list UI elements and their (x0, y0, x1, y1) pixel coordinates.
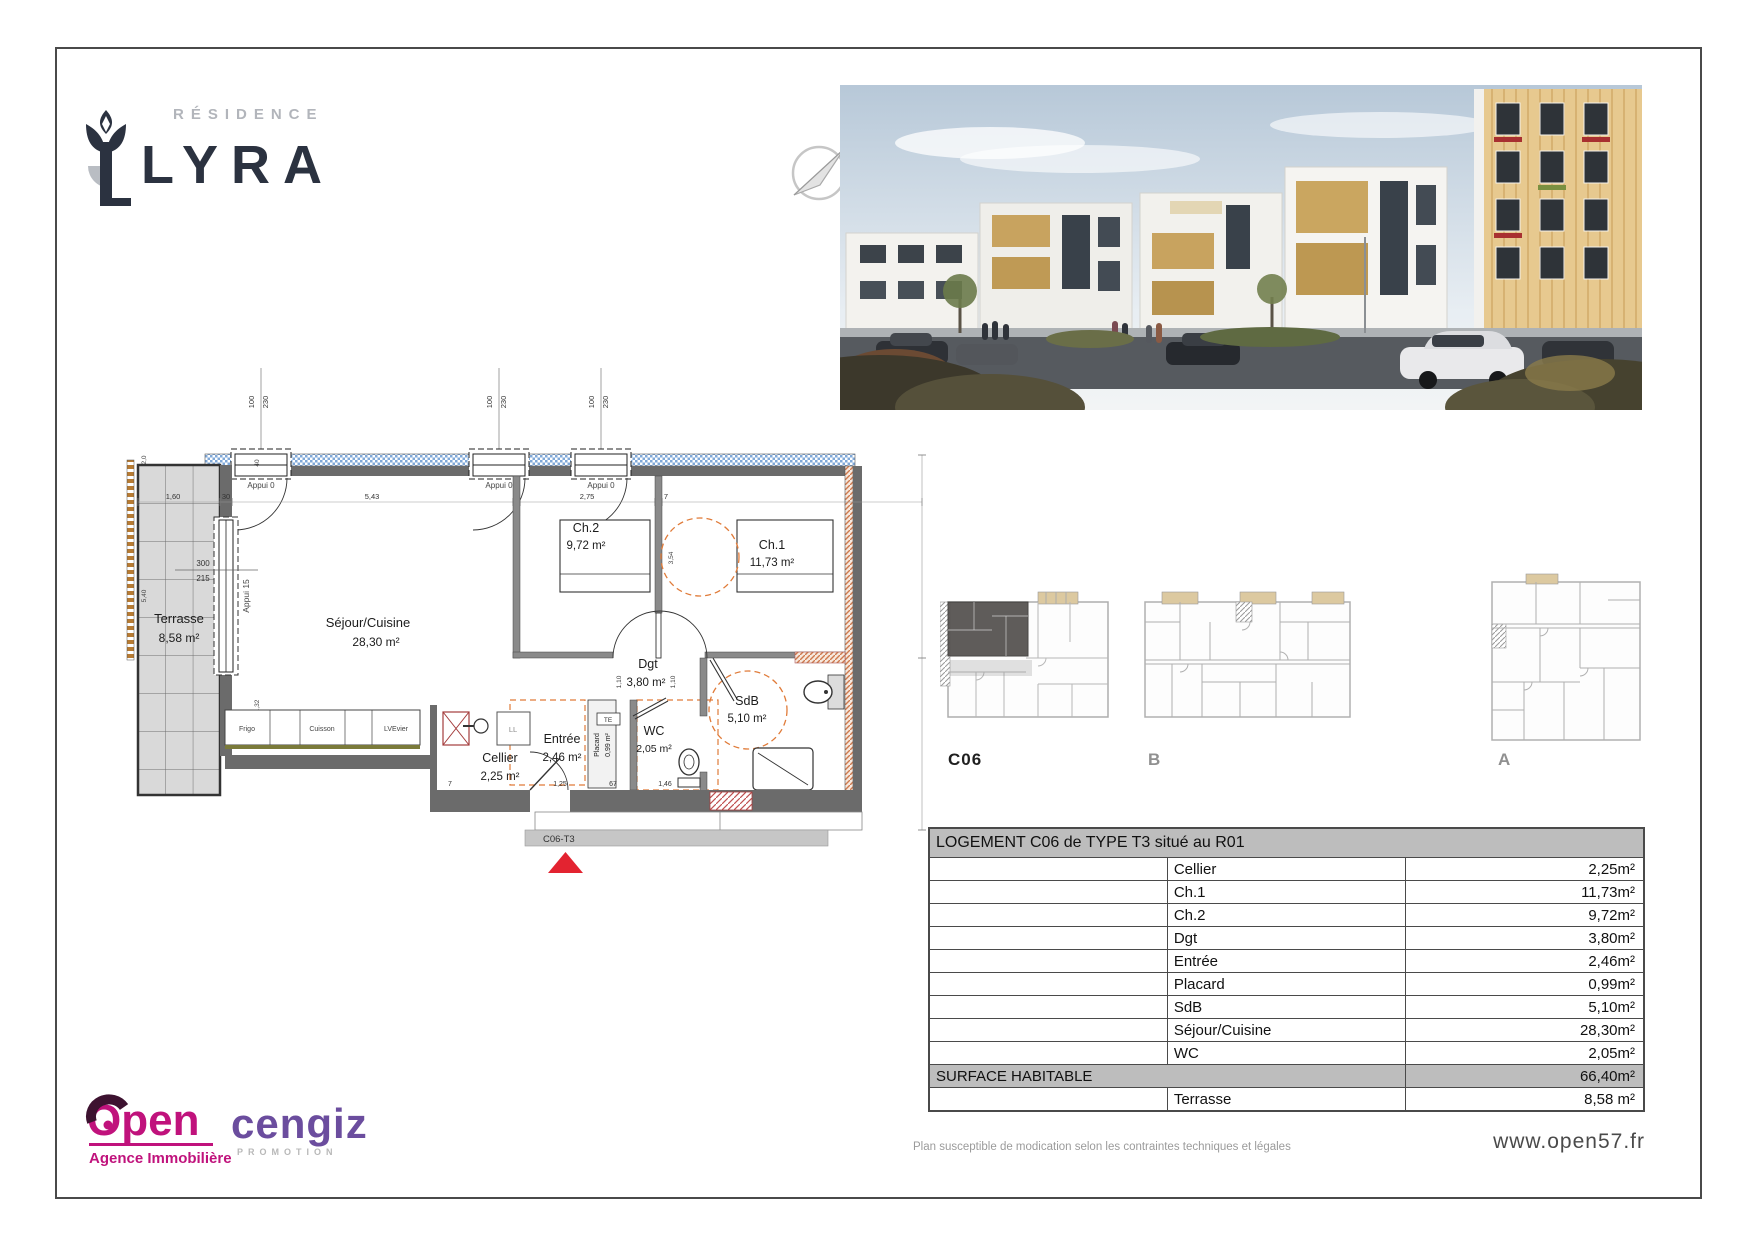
website-url: www.open57.fr (1345, 1130, 1645, 1154)
dim-label: 100 (485, 396, 494, 409)
kitchen-label: Frigo (239, 726, 255, 733)
table-row: Ch.2 9,72m² (929, 904, 1644, 927)
dim-label: 7 (448, 781, 452, 788)
room-name: Dgt (638, 657, 658, 671)
dim-label: 1,60 (166, 492, 181, 501)
room-name: Entrée (544, 732, 581, 746)
terrace (127, 460, 220, 795)
key-plan-label-b: B (1148, 750, 1161, 770)
table-row: SdB 5,10m² (929, 996, 1644, 1019)
cengiz-logo: cengiz (231, 1100, 368, 1148)
room-value: 5,10m² (1406, 996, 1644, 1019)
dim-label: 40 (254, 459, 261, 467)
dim-label: 230 (499, 396, 508, 409)
dim-label: 100 (247, 396, 256, 409)
residence-photo (840, 85, 1642, 410)
room-label: Terrasse (1167, 1088, 1405, 1112)
dim-label: 230 (601, 396, 610, 409)
dim-label: 1,10 (616, 675, 623, 688)
dim-label: 1,10 (670, 675, 677, 688)
table-row: Cellier 2,25m² (929, 858, 1644, 881)
dim-label: 5,43 (365, 492, 380, 501)
lyra-flower-icon (80, 108, 132, 208)
room-area: 2,25 m² (481, 771, 520, 783)
dim-label: 100 (587, 396, 596, 409)
table-title-row: LOGEMENT C06 de TYPE T3 situé au R01 (929, 828, 1644, 858)
kitchen-label: LVEvier (384, 726, 409, 733)
kitchen-counter: Frigo Cuisson LVEvier (225, 710, 420, 749)
disclaimer-text: Plan susceptible de modication selon les… (913, 1141, 1291, 1153)
room-area: 28,30 m² (352, 635, 399, 649)
dim-label: 3,54 (668, 551, 675, 564)
table-row: Terrasse 8,58 m² (929, 1088, 1644, 1112)
dim-label: 7 (664, 492, 668, 501)
exterior-insulation (205, 454, 855, 466)
party-wall (853, 466, 862, 812)
room-value: 9,72m² (1406, 904, 1644, 927)
residence-label: RÉSIDENCE (173, 106, 403, 123)
table-row: Ch.1 11,73m² (929, 881, 1644, 904)
floor-plan: 100 230 100 230 100 230 Appui 0 Appui (110, 360, 940, 880)
room-area: 3,80 m² (627, 677, 666, 689)
room-value: 2,46m² (1406, 950, 1644, 973)
room-label: Ch.1 (1167, 881, 1405, 904)
room-area: 5,10 m² (728, 713, 767, 725)
room-name: Séjour/Cuisine (326, 615, 411, 630)
key-plan-label-c06: C06 (948, 750, 982, 770)
dim-label: 1,46 (658, 781, 672, 788)
room-value: 0,99m² (1406, 973, 1644, 996)
key-plan-b (1145, 592, 1350, 717)
room-name: Terrasse (154, 611, 204, 626)
table-row: Dgt 3,80m² (929, 927, 1644, 950)
room-label: Séjour/Cuisine (1167, 1019, 1405, 1042)
table-row: Entrée 2,46m² (929, 950, 1644, 973)
room-area: 0,99 m² (605, 732, 612, 756)
dim-label: 215 (196, 574, 210, 583)
room-value: 11,73m² (1406, 881, 1644, 904)
toilet (679, 749, 699, 775)
kitchen-label: Cuisson (309, 726, 334, 733)
residence-name: LYRA (141, 134, 335, 196)
room-value: 2,05m² (1406, 1042, 1644, 1065)
room-area: 9,72 m² (567, 540, 606, 552)
key-plan-label-a: A (1498, 750, 1511, 770)
open-tagline: Agence Immobilière (89, 1150, 232, 1167)
key-plan-c06 (940, 592, 1108, 717)
north-wall (205, 466, 855, 476)
room-label: Placard (1167, 973, 1405, 996)
room-name: Ch.1 (759, 538, 785, 552)
te-label: TE (604, 717, 613, 724)
turning-circle (709, 671, 787, 749)
dim-label: 300 (196, 559, 210, 568)
plan-sheet: RÉSIDENCE LYRA (0, 0, 1754, 1241)
room-label: WC (1167, 1042, 1405, 1065)
dim-label: 5,40 (141, 589, 148, 602)
surface-total-value: 66,40m² (1406, 1065, 1644, 1088)
room-value: 28,30m² (1406, 1019, 1644, 1042)
room-label: SdB (1167, 996, 1405, 1019)
room-area: 8,58 m² (159, 631, 200, 645)
dim-label: 230 (261, 396, 270, 409)
dim-label: 67 (609, 781, 617, 788)
room-name: Placard (594, 733, 601, 757)
surfaces-table: LOGEMENT C06 de TYPE T3 situé au R01 Cel… (928, 827, 1645, 1112)
room-label: Dgt (1167, 927, 1405, 950)
surface-total-row: SURFACE HABITABLE 66,40m² (929, 1065, 1644, 1088)
appui-label: Appui 15 (241, 579, 251, 613)
room-label: Entrée (1167, 950, 1405, 973)
room-area: 11,73 m² (750, 557, 795, 569)
ll-label: LL (509, 725, 517, 734)
open-underline (89, 1143, 213, 1146)
room-label: Cellier (1167, 858, 1405, 881)
table-title: LOGEMENT C06 de TYPE T3 situé au R01 (929, 828, 1644, 858)
cengiz-tagline: PROMOTION (237, 1147, 338, 1157)
appui-label: Appui 0 (587, 481, 615, 490)
room-value: 8,58 m² (1406, 1088, 1644, 1112)
key-plan-a (1492, 574, 1640, 740)
room-value: 3,80m² (1406, 927, 1644, 950)
entrance-arrow-icon (548, 852, 583, 873)
unit-label: C06-T3 (543, 834, 575, 845)
dim-label: 30 (222, 492, 230, 501)
dim-label: 2,75 (580, 492, 595, 501)
dim-label: 2,0 (141, 455, 148, 464)
appui-label: Appui 0 (247, 481, 275, 490)
dim-label: 1,25 (553, 781, 567, 788)
room-label: Ch.2 (1167, 904, 1405, 927)
key-plans (940, 572, 1650, 752)
table-row: Placard 0,99m² (929, 973, 1644, 996)
table-row: Séjour/Cuisine 28,30m² (929, 1019, 1644, 1042)
room-name: SdB (735, 694, 759, 708)
table-row: WC 2,05m² (929, 1042, 1644, 1065)
bed (737, 520, 833, 592)
open-o-accent-icon (84, 1094, 134, 1144)
room-name: Ch.2 (573, 521, 599, 535)
room-name: WC (644, 724, 665, 738)
appui-label: Appui 0 (485, 481, 513, 490)
room-area: 2,05 m² (636, 743, 672, 755)
room-area: 2,46 m² (543, 752, 582, 764)
room-name: Cellier (482, 751, 517, 765)
surface-total-label: SURFACE HABITABLE (929, 1065, 1406, 1088)
room-value: 2,25m² (1406, 858, 1644, 881)
